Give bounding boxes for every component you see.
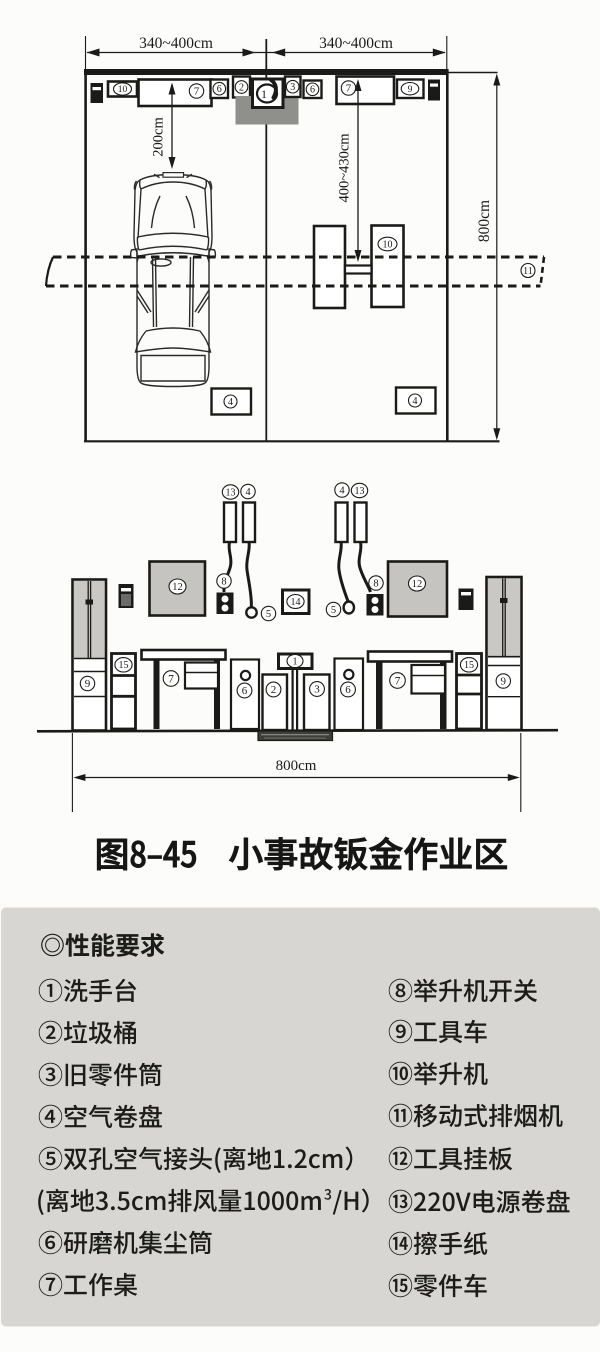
svg-text:800cm: 800cm xyxy=(276,758,317,774)
svg-text:1: 1 xyxy=(261,87,267,101)
svg-text:9: 9 xyxy=(501,676,507,688)
svg-text:8: 8 xyxy=(373,579,378,590)
svg-text:2: 2 xyxy=(271,684,277,696)
svg-text:11: 11 xyxy=(523,266,533,277)
svg-text:6: 6 xyxy=(310,85,315,96)
svg-text:3: 3 xyxy=(314,684,320,696)
svg-text:340~400cm: 340~400cm xyxy=(139,35,213,52)
svg-text:10: 10 xyxy=(383,239,393,250)
svg-text:12: 12 xyxy=(172,582,183,593)
svg-text:340~400cm: 340~400cm xyxy=(319,35,393,52)
svg-text:400~430cm: 400~430cm xyxy=(337,133,353,203)
svg-text:6: 6 xyxy=(242,685,248,697)
svg-text:14: 14 xyxy=(291,597,301,608)
svg-text:4: 4 xyxy=(413,396,418,407)
svg-text:5: 5 xyxy=(266,609,271,620)
svg-text:7: 7 xyxy=(395,675,401,687)
svg-text:15: 15 xyxy=(119,660,129,671)
svg-text:4: 4 xyxy=(228,397,233,408)
svg-text:1: 1 xyxy=(293,656,298,667)
svg-text:4: 4 xyxy=(339,486,345,497)
svg-text:9: 9 xyxy=(85,678,91,690)
svg-text:12: 12 xyxy=(412,579,423,590)
svg-text:13: 13 xyxy=(226,487,236,498)
svg-text:4: 4 xyxy=(245,487,251,498)
svg-text:6: 6 xyxy=(217,84,222,95)
svg-text:2: 2 xyxy=(239,82,244,93)
svg-text:13: 13 xyxy=(355,486,365,497)
svg-text:7: 7 xyxy=(168,673,174,685)
svg-text:3: 3 xyxy=(290,82,295,93)
svg-text:5: 5 xyxy=(331,605,336,616)
svg-text:8: 8 xyxy=(221,577,226,588)
svg-text:200cm: 200cm xyxy=(151,117,167,157)
svg-text:9: 9 xyxy=(408,85,413,95)
svg-text:800cm: 800cm xyxy=(476,200,493,242)
svg-text:7: 7 xyxy=(194,86,200,98)
svg-text:7: 7 xyxy=(346,83,352,95)
svg-text:6: 6 xyxy=(345,684,351,696)
svg-text:10: 10 xyxy=(118,85,128,95)
svg-text:15: 15 xyxy=(464,660,474,671)
